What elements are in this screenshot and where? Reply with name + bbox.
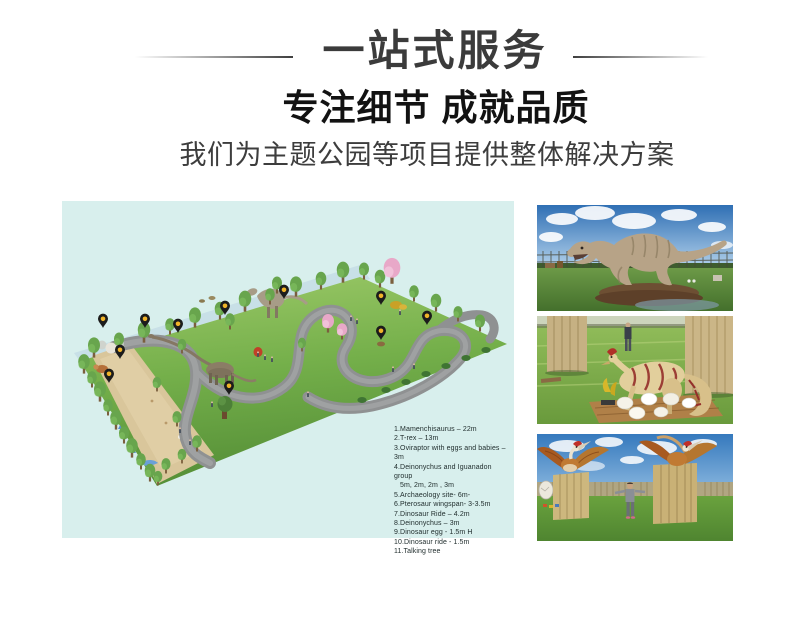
legend-line: 5.Archaeology site- 6m- xyxy=(394,491,512,500)
park-plan-illustration: 1.Mamenchisaurus – 22m 2.T-rex – 13m 3.O… xyxy=(62,201,514,538)
legend-line: 2.T-rex – 13m xyxy=(394,434,512,443)
pond xyxy=(635,299,719,311)
legend-line: 6.Pterosaur wingspan- 3-3.5m xyxy=(394,500,512,509)
legend-line: 5m, 2m, 2m , 3m xyxy=(394,481,512,490)
egg-prop xyxy=(539,481,553,499)
pterosaur-exhibit-photo xyxy=(537,434,733,541)
legend-line: 10.Dinosaur ride - 1.5m xyxy=(394,538,512,547)
title-left-dash xyxy=(135,56,293,58)
legend-line: 1.Mamenchisaurus – 22m xyxy=(394,425,512,434)
title-right-dash xyxy=(573,56,708,58)
plinth-left xyxy=(553,472,589,520)
map-legend: 1.Mamenchisaurus – 22m 2.T-rex – 13m 3.O… xyxy=(394,425,512,557)
legend-line: 8.Deinonychus – 3m xyxy=(394,519,512,528)
legend-line: 3.Oviraptor with eggs and babies – 3m xyxy=(394,444,512,463)
legend-line: 9.Dinosaur egg - 1.5m H xyxy=(394,528,512,537)
promo-page: 一站式服务 专注细节 成就品质 我们为主题公园等项目提供整体解决方案 xyxy=(0,0,800,626)
legend-line: 7.Dinosaur Ride – 4.2m xyxy=(394,510,512,519)
legend-line: 11.Talking tree xyxy=(394,547,512,556)
plinth-right xyxy=(653,463,697,524)
oviraptor-with-eggs-photo xyxy=(537,316,733,424)
subtitle: 我们为主题公园等项目提供整体解决方案 xyxy=(27,139,800,171)
wooden-post-left xyxy=(545,316,589,376)
page-title: 一站式服务 xyxy=(70,28,800,74)
t-rex-exhibit-photo xyxy=(537,205,733,311)
legend-line: 4.Deinonychus and Iguanadon group xyxy=(394,463,512,482)
headline: 专注细节 成就品质 xyxy=(72,86,800,129)
